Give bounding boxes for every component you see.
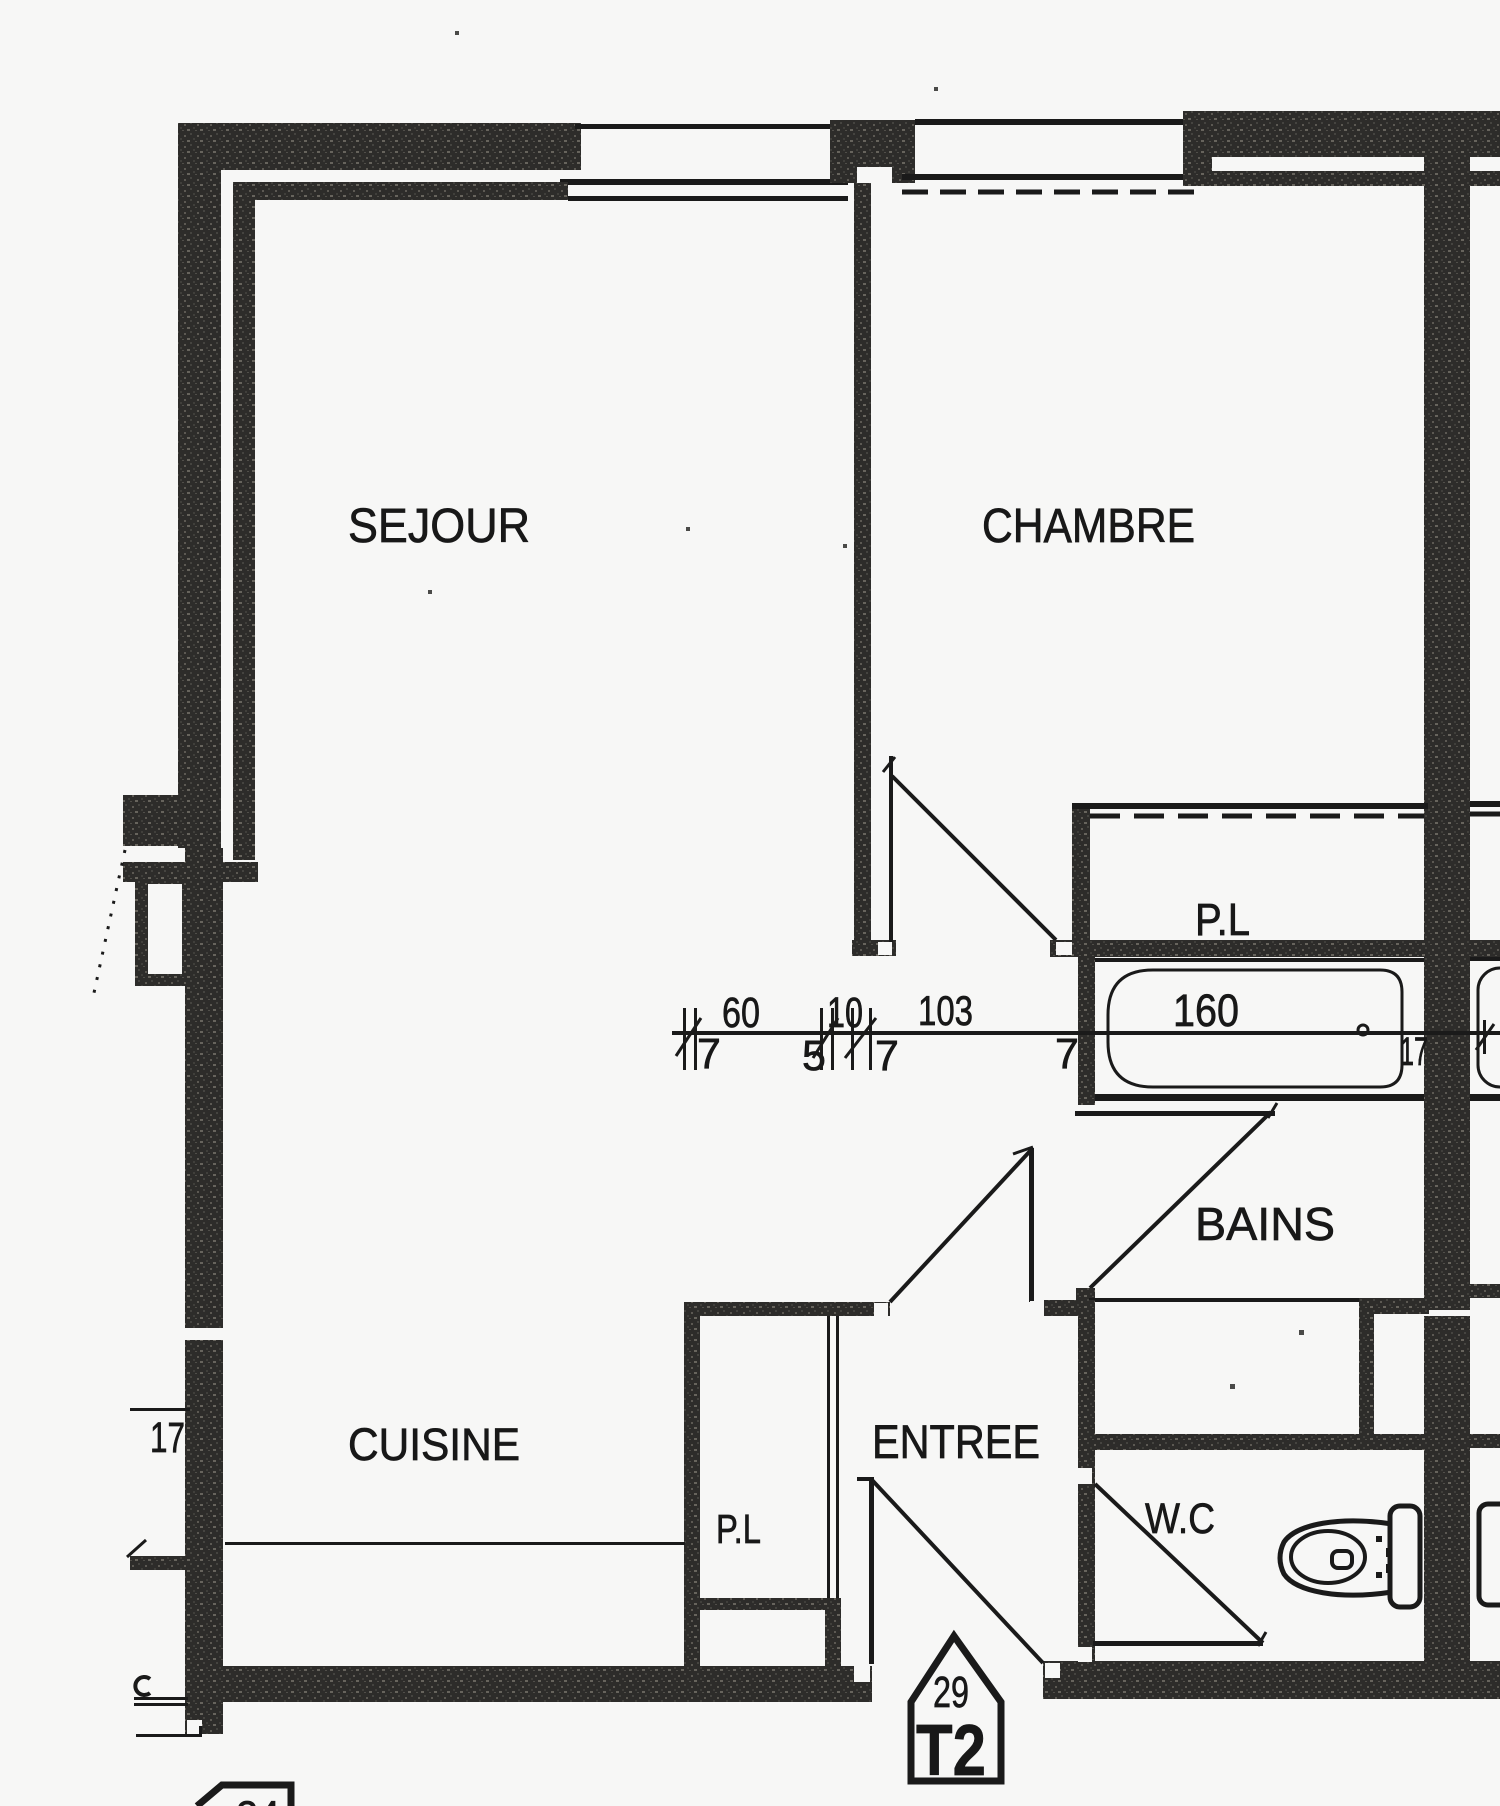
svg-text:7: 7 (697, 1030, 721, 1078)
svg-text:W.C: W.C (1145, 1495, 1215, 1543)
svg-text:T2: T2 (916, 1711, 986, 1791)
svg-text:60: 60 (722, 989, 760, 1037)
svg-text:17: 17 (150, 1414, 185, 1462)
svg-text:10: 10 (827, 989, 863, 1037)
svg-text:P.L: P.L (1195, 894, 1250, 945)
svg-text:160: 160 (1173, 985, 1239, 1036)
svg-text:17: 17 (1400, 1030, 1428, 1074)
svg-text:7: 7 (875, 1032, 899, 1080)
svg-text:24: 24 (236, 1792, 280, 1806)
svg-text:SEJOUR: SEJOUR (348, 500, 530, 553)
svg-text:5: 5 (802, 1032, 826, 1080)
svg-text:CHAMBRE: CHAMBRE (982, 500, 1195, 553)
svg-text:7: 7 (1055, 1030, 1079, 1078)
svg-text:ENTREE: ENTREE (872, 1415, 1040, 1468)
svg-text:CUISINE: CUISINE (348, 1419, 520, 1470)
svg-text:103: 103 (918, 987, 973, 1034)
svg-text:BAINS: BAINS (1195, 1198, 1335, 1250)
svg-text:29: 29 (933, 1668, 969, 1717)
svg-text:P.L: P.L (716, 1506, 761, 1552)
